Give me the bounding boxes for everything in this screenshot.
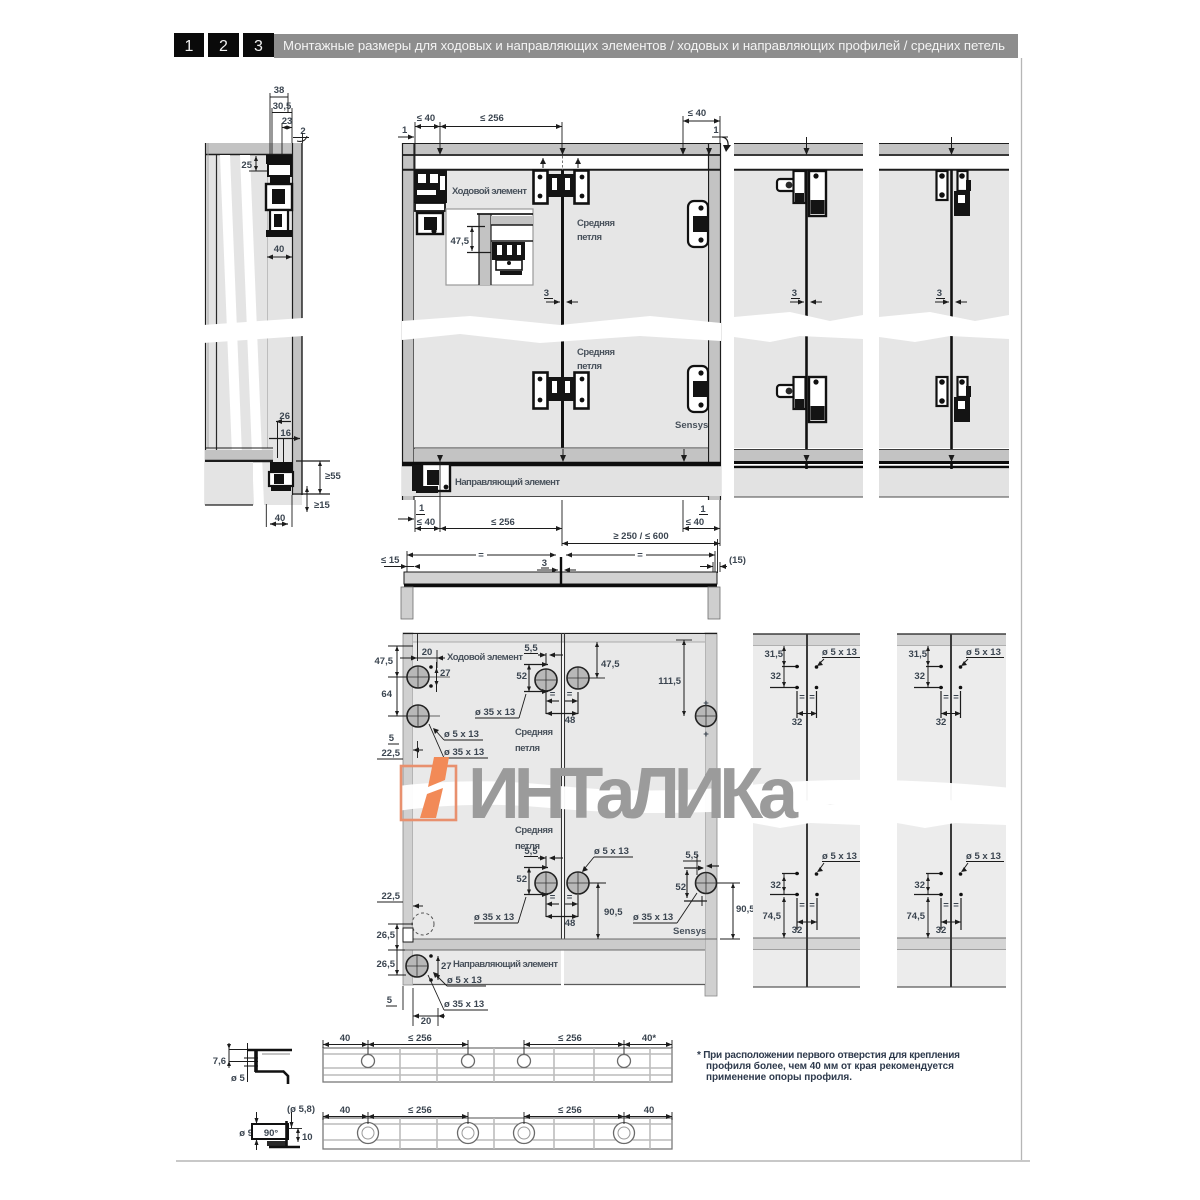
svg-text:≤ 256: ≤ 256	[558, 1105, 582, 1116]
svg-text:≥55: ≥55	[325, 471, 341, 482]
svg-text:26,5: 26,5	[377, 930, 396, 941]
svg-text:3: 3	[544, 288, 549, 299]
svg-text:5: 5	[387, 995, 393, 1006]
svg-text:74,5: 74,5	[907, 911, 926, 922]
svg-text:* При расположении первого отв: * При расположении первого отверстия для…	[697, 1050, 960, 1061]
svg-text:74,5: 74,5	[763, 911, 782, 922]
svg-text:90,5: 90,5	[736, 904, 755, 915]
svg-text:петля: петля	[577, 232, 602, 243]
svg-text:1: 1	[713, 125, 719, 136]
svg-text:31,5: 31,5	[765, 649, 784, 660]
svg-text:=: =	[550, 689, 556, 700]
svg-text:применение опоры профиля.: применение опоры профиля.	[706, 1071, 852, 1083]
svg-text:ø 5 x 13: ø 5 x 13	[594, 846, 629, 857]
svg-text:27: 27	[441, 961, 452, 972]
svg-text:31,5: 31,5	[909, 649, 928, 660]
svg-text:ИНТаЛИКа: ИНТаЛИКа	[468, 754, 800, 834]
svg-text:профиля более, чем 40 мм от кр: профиля более, чем 40 мм от края рекомен…	[706, 1060, 954, 1072]
svg-text:90°: 90°	[264, 1128, 279, 1139]
svg-text:+: +	[703, 729, 709, 740]
svg-text:≤ 256: ≤ 256	[558, 1033, 582, 1044]
svg-text:≥ 250 / ≤ 600: ≥ 250 / ≤ 600	[613, 531, 668, 542]
svg-text:32: 32	[914, 880, 925, 891]
svg-text:ø 5 x 13: ø 5 x 13	[822, 647, 857, 658]
svg-text:≤ 256: ≤ 256	[491, 517, 515, 528]
svg-text:32: 32	[936, 717, 947, 728]
svg-text:≥15: ≥15	[314, 500, 330, 511]
svg-text:Ходовой элемент: Ходовой элемент	[452, 186, 527, 197]
svg-text:111,5: 111,5	[658, 676, 681, 687]
svg-text:=: =	[809, 900, 815, 911]
svg-text:32: 32	[770, 880, 781, 891]
svg-text:22,5: 22,5	[382, 891, 401, 902]
svg-text:16: 16	[280, 428, 291, 439]
svg-text:48: 48	[565, 715, 576, 726]
svg-text:3: 3	[792, 288, 797, 299]
svg-text:30,5: 30,5	[273, 101, 292, 112]
svg-text:40: 40	[340, 1033, 351, 1044]
svg-text:ø 5 x 13: ø 5 x 13	[966, 647, 1001, 658]
svg-text:≤ 256: ≤ 256	[408, 1105, 432, 1116]
svg-text:40*: 40*	[642, 1033, 657, 1044]
svg-text:ø 35 x 13: ø 35 x 13	[633, 912, 673, 923]
svg-text:38: 38	[274, 85, 285, 96]
svg-text:ø 5 x 13: ø 5 x 13	[966, 851, 1001, 862]
svg-text:48: 48	[565, 918, 576, 929]
svg-text:≤ 40: ≤ 40	[417, 517, 435, 528]
svg-text:47,5: 47,5	[451, 236, 470, 247]
svg-text:47,5: 47,5	[375, 656, 394, 667]
svg-text:≤ 256: ≤ 256	[480, 113, 504, 124]
svg-text:20: 20	[421, 1016, 432, 1027]
svg-text:47,5: 47,5	[601, 659, 620, 670]
svg-text:5: 5	[389, 733, 395, 744]
svg-text:1: 1	[700, 504, 706, 515]
svg-text:40: 40	[274, 244, 285, 255]
svg-text:90,5: 90,5	[604, 907, 623, 918]
svg-text:≤ 40: ≤ 40	[688, 108, 706, 119]
svg-text:1: 1	[185, 38, 194, 55]
svg-text:=: =	[799, 900, 805, 911]
svg-text:3: 3	[542, 558, 547, 569]
svg-text:23: 23	[282, 116, 293, 127]
svg-text:≤ 40: ≤ 40	[417, 113, 435, 124]
svg-text:Sensys: Sensys	[673, 926, 706, 937]
svg-text:52: 52	[516, 874, 527, 885]
svg-text:Монтажные размеры для ходовых: Монтажные размеры для ходовых и направля…	[283, 38, 1005, 53]
svg-text:1: 1	[402, 125, 408, 136]
svg-text:40: 40	[340, 1105, 351, 1116]
svg-text:Направляющий элемент: Направляющий элемент	[455, 477, 560, 488]
svg-text:25: 25	[241, 160, 252, 171]
svg-text:=: =	[478, 550, 484, 561]
svg-text:32: 32	[936, 925, 947, 936]
svg-text:20: 20	[422, 647, 433, 658]
svg-text:ø 5 x 13: ø 5 x 13	[447, 975, 482, 986]
svg-text:ø 35 x 13: ø 35 x 13	[474, 912, 514, 923]
svg-text:40: 40	[644, 1105, 655, 1116]
svg-text:5,5: 5,5	[524, 846, 538, 857]
svg-text:26,5: 26,5	[377, 959, 396, 970]
svg-text:петля: петля	[577, 361, 602, 372]
svg-text:≤ 15: ≤ 15	[381, 555, 400, 566]
svg-text:10: 10	[302, 1132, 313, 1143]
svg-text:=: =	[809, 692, 815, 703]
svg-text:2: 2	[219, 38, 228, 55]
svg-text:=: =	[799, 692, 805, 703]
svg-text:2: 2	[300, 126, 305, 137]
svg-text:=: =	[550, 892, 556, 903]
svg-text:ø 5 x 13: ø 5 x 13	[822, 851, 857, 862]
svg-text:64: 64	[381, 689, 392, 700]
svg-text:+: +	[703, 698, 709, 709]
svg-text:1: 1	[419, 503, 425, 514]
svg-text:ø 5: ø 5	[231, 1073, 245, 1084]
svg-text:Средняя: Средняя	[577, 347, 615, 358]
svg-text:(15): (15)	[729, 555, 746, 566]
svg-text:27: 27	[440, 668, 451, 679]
svg-text:=: =	[567, 892, 573, 903]
svg-text:=: =	[953, 900, 959, 911]
svg-text:=: =	[943, 692, 949, 703]
svg-text:ø 5 x 13: ø 5 x 13	[444, 729, 479, 740]
svg-text:Направляющий элемент: Направляющий элемент	[453, 959, 558, 970]
svg-text:3: 3	[937, 288, 942, 299]
svg-text:52: 52	[675, 882, 686, 893]
svg-text:3: 3	[254, 38, 263, 55]
svg-text:=: =	[943, 900, 949, 911]
svg-text:5,5: 5,5	[524, 643, 538, 654]
svg-text:Средняя: Средняя	[577, 218, 615, 229]
svg-text:Sensys: Sensys	[675, 420, 708, 431]
svg-text:=: =	[567, 689, 573, 700]
svg-text:=: =	[953, 692, 959, 703]
svg-text:7,6: 7,6	[213, 1056, 226, 1067]
svg-text:Средняя: Средняя	[515, 727, 553, 738]
svg-text:22,5: 22,5	[382, 748, 401, 759]
svg-text:петля: петля	[515, 743, 540, 754]
svg-text:Ходовой элемент: Ходовой элемент	[447, 652, 523, 663]
svg-text:=: =	[637, 550, 643, 561]
svg-text:32: 32	[914, 671, 925, 682]
svg-text:52: 52	[516, 671, 527, 682]
svg-text:ø 9: ø 9	[239, 1128, 253, 1139]
svg-text:≤ 256: ≤ 256	[408, 1033, 432, 1044]
svg-text:32: 32	[770, 671, 781, 682]
svg-text:32: 32	[792, 925, 803, 936]
svg-text:ø 35 x 13: ø 35 x 13	[444, 999, 484, 1010]
svg-text:32: 32	[792, 717, 803, 728]
svg-text:ø 35 x 13: ø 35 x 13	[475, 707, 515, 718]
